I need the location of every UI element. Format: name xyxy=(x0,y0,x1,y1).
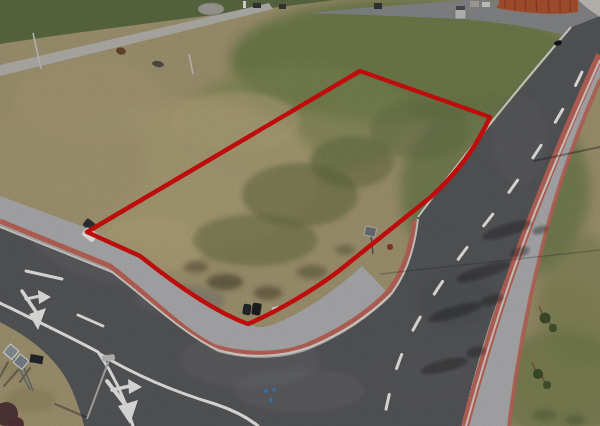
aerial-photo xyxy=(0,0,600,426)
scene-canvas xyxy=(0,0,600,426)
photo-grain xyxy=(0,0,600,426)
